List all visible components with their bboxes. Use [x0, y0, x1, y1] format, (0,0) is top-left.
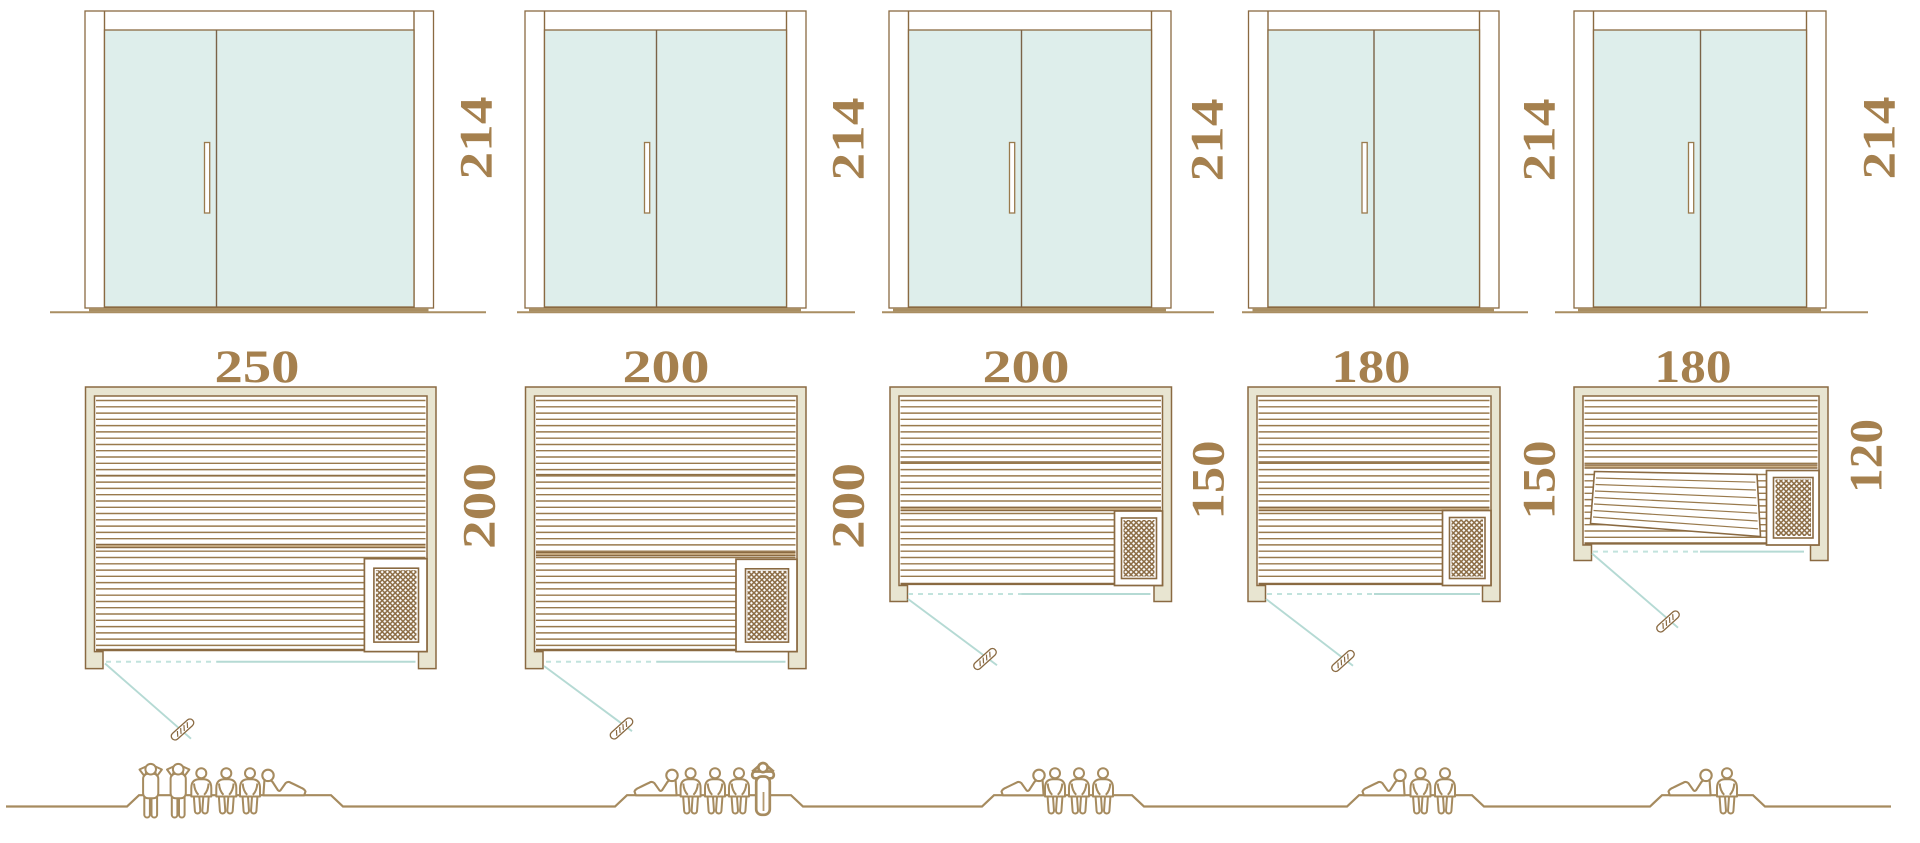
- svg-text:214: 214: [1183, 99, 1234, 182]
- svg-text:120: 120: [1842, 419, 1893, 493]
- svg-text:200: 200: [455, 463, 506, 549]
- svg-text:200: 200: [824, 463, 875, 549]
- svg-text:250: 250: [215, 342, 300, 393]
- svg-text:180: 180: [1655, 342, 1732, 393]
- svg-text:200: 200: [623, 342, 710, 393]
- svg-text:150: 150: [1184, 441, 1235, 520]
- svg-text:150: 150: [1515, 441, 1566, 520]
- svg-text:214: 214: [1515, 99, 1566, 182]
- svg-text:200: 200: [983, 342, 1070, 393]
- svg-text:214: 214: [824, 98, 875, 181]
- svg-text:214: 214: [452, 97, 503, 180]
- svg-text:180: 180: [1332, 342, 1411, 393]
- svg-text:214: 214: [1855, 97, 1906, 180]
